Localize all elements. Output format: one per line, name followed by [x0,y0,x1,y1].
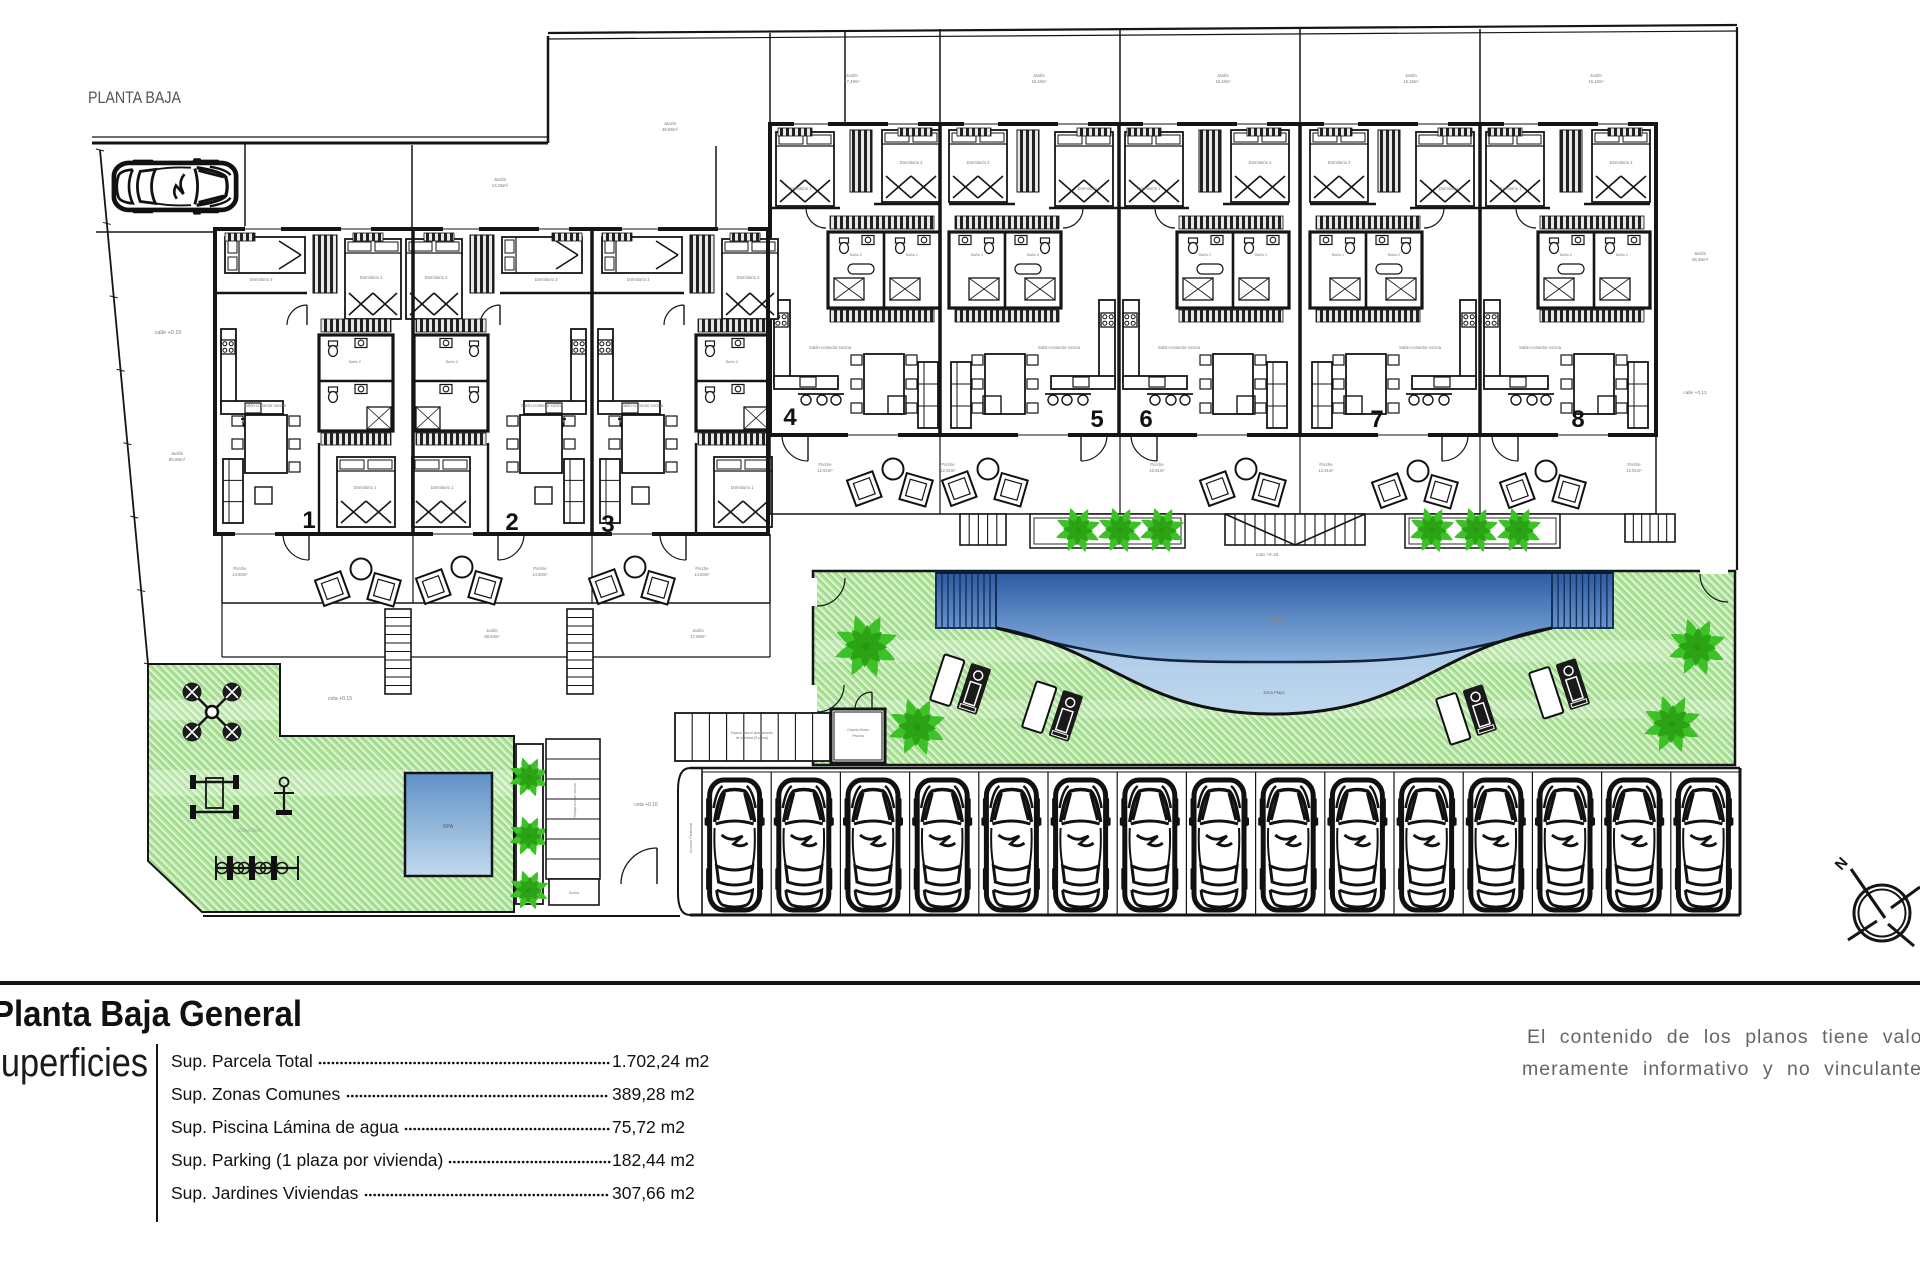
svg-text:Dormitorio 2: Dormitorio 2 [1610,160,1633,165]
svg-text:Dormitorio 2: Dormitorio 2 [900,160,923,165]
svg-text:Porche: Porche [818,462,832,467]
svg-text:12,91m²: 12,91m² [1149,468,1165,473]
svg-text:Porche: Porche [941,462,955,467]
svg-text:Sup. Parcela Total: Sup. Parcela Total [171,1051,313,1071]
svg-text:cota +0.16: cota +0.16 [634,802,658,808]
svg-text:16,16m²: 16,16m² [1215,79,1231,84]
svg-text:Jardín: Jardín [692,628,704,633]
svg-text:Jardín: Jardín [1590,73,1602,78]
svg-text:Baño 2: Baño 2 [349,360,361,364]
svg-text:16,16m²: 16,16m² [1031,79,1047,84]
svg-text:Rampa acceso minusv.: Rampa acceso minusv. [573,782,577,817]
svg-text:Acceso Peatonal: Acceso Peatonal [688,823,693,853]
svg-text:Jardín: Jardín [846,73,858,78]
svg-text:Porche: Porche [233,566,247,571]
svg-text:PLANTA BAJA: PLANTA BAJA [88,88,182,107]
svg-text:cota +0.15: cota +0.15 [328,696,352,702]
svg-text:calle +0.15: calle +0.15 [155,330,182,336]
svg-text:Zona Gym: Zona Gym [238,828,261,834]
svg-text:Jardín: Jardín [1217,73,1229,78]
svg-text:Jardín: Jardín [1405,73,1417,78]
svg-text:Porche: Porche [695,566,709,571]
svg-text:14,60m²: 14,60m² [694,572,710,577]
svg-text:Baño 2: Baño 2 [1199,253,1211,257]
svg-text:Dormitorio 1: Dormitorio 1 [354,485,377,490]
svg-text:7: 7 [1370,406,1383,433]
svg-text:Caseta Motor: Caseta Motor [847,728,869,732]
svg-text:5: 5 [1090,406,1103,433]
svg-text:14,05m²: 14,05m² [492,183,509,188]
svg-text:El contenido de los planos tie: El contenido de los planos tiene valor [1527,1026,1920,1048]
svg-text:90,86m²: 90,86m² [169,457,186,462]
svg-text:2: 2 [505,509,518,536]
svg-text:Jardín: Jardín [664,121,677,126]
svg-text:Salón-comedor-cocina: Salón-comedor-cocina [1038,345,1081,350]
svg-text:Salón-comedor-cocina: Salón-comedor-cocina [809,345,852,350]
svg-text:Sup. Zonas Comunes: Sup. Zonas Comunes [171,1084,341,1104]
svg-text:Baño 1: Baño 1 [1255,253,1267,257]
svg-text:cota +0.16: cota +0.16 [1256,552,1279,558]
svg-text:Dormitorio 3: Dormitorio 3 [535,277,558,282]
svg-text:Baño 2: Baño 2 [1388,253,1400,257]
svg-text:Jardín: Jardín [1694,251,1707,256]
svg-text:17,49m²: 17,49m² [844,79,860,84]
svg-text:Baño 2: Baño 2 [726,360,738,364]
svg-text:Dormitorio 2: Dormitorio 2 [1249,160,1272,165]
svg-text:Baño 1: Baño 1 [1616,253,1628,257]
svg-text:de bicicletas (8 plazas): de bicicletas (8 plazas) [736,736,768,740]
svg-text:Porche: Porche [1150,462,1164,467]
svg-text:88,54m²: 88,54m² [484,634,500,639]
svg-text:182,44 m2: 182,44 m2 [612,1150,695,1170]
svg-text:48,86m²: 48,86m² [662,127,679,132]
svg-text:Dormitorio 2: Dormitorio 2 [1328,160,1351,165]
svg-text:Salón-comedor-cocina: Salón-comedor-cocina [621,403,664,408]
svg-text:75,72 m2: 75,72 m2 [612,1117,685,1137]
svg-text:Jardín: Jardín [1033,73,1045,78]
svg-text:Baño 2: Baño 2 [446,360,458,364]
svg-text:Salón-comedor-cocina: Salón-comedor-cocina [1519,345,1562,350]
svg-text:Dormitorio 3: Dormitorio 3 [627,277,650,282]
svg-text:Sup. Piscina Lámina de agua: Sup. Piscina Lámina de agua [171,1117,399,1137]
svg-text:Dormitorio 1: Dormitorio 1 [431,485,454,490]
svg-text:Dormitorio 1: Dormitorio 1 [1439,186,1462,191]
svg-text:Salón-comedor-cocina: Salón-comedor-cocina [521,403,564,408]
svg-text:6: 6 [1139,406,1152,433]
svg-text:Porche: Porche [533,566,547,571]
svg-text:Ducha: Ducha [569,891,579,895]
svg-text:Planta Baja General: Planta Baja General [0,993,302,1034]
svg-text:Salón-comedor-cocina: Salón-comedor-cocina [1399,345,1442,350]
svg-text:17,68m²: 17,68m² [690,634,706,639]
svg-text:calle +0,13: calle +0,13 [1683,390,1707,396]
svg-text:Salón-comedor-cocina: Salón-comedor-cocina [1158,345,1201,350]
svg-text:Dormitorio 1: Dormitorio 1 [731,485,754,490]
svg-text:Jardín: Jardín [171,451,184,456]
svg-text:Dormitorio 2: Dormitorio 2 [967,160,990,165]
svg-text:3: 3 [601,511,614,538]
svg-text:14,60m²: 14,60m² [232,572,248,577]
svg-text:Baño 2: Baño 2 [850,253,862,257]
svg-text:Baño 1: Baño 1 [1332,253,1344,257]
svg-text:Piscina: Piscina [1270,617,1284,622]
svg-text:Dormitorio 1: Dormitorio 1 [1078,186,1101,191]
svg-text:Dormitorio 2: Dormitorio 2 [360,275,383,280]
svg-text:Dormitorio 1: Dormitorio 1 [1499,186,1522,191]
svg-text:Baño 1: Baño 1 [971,253,983,257]
svg-text:Sup. Parking (1 plaza por vivi: Sup. Parking (1 plaza por vivienda) [171,1150,443,1170]
svg-text:389,28 m2: 389,28 m2 [612,1084,695,1104]
svg-text:49,36m²: 49,36m² [1692,257,1709,262]
svg-text:Sup. Jardines Viviendas: Sup. Jardines Viviendas [171,1183,359,1203]
svg-text:Jardín: Jardín [486,628,498,633]
svg-text:16,16m²: 16,16m² [1403,79,1419,84]
svg-text:Superficies: Superficies [0,1041,148,1085]
svg-text:Baño 2: Baño 2 [1560,253,1572,257]
svg-text:Porche: Porche [1319,462,1333,467]
svg-text:Dormitorio 1: Dormitorio 1 [1138,186,1161,191]
svg-text:8: 8 [1571,406,1584,433]
svg-text:12,91m²: 12,91m² [817,468,833,473]
svg-text:12,91m²: 12,91m² [1626,468,1642,473]
svg-text:Baño 2: Baño 2 [1027,253,1039,257]
svg-text:307,66 m2: 307,66 m2 [612,1183,695,1203]
svg-text:Dormitorio 1: Dormitorio 1 [789,186,812,191]
svg-text:1.702,24 m2: 1.702,24 m2 [612,1051,709,1071]
svg-text:SPA: SPA [443,824,454,830]
svg-text:12,91m²: 12,91m² [1318,468,1334,473]
svg-text:4: 4 [783,404,797,431]
svg-text:12,91m²: 12,91m² [940,468,956,473]
svg-text:16,16m²: 16,16m² [1588,79,1604,84]
svg-text:Porche: Porche [1627,462,1641,467]
svg-text:Espacio para el aparcamiento: Espacio para el aparcamiento [731,731,773,735]
svg-text:Dormitorio 2: Dormitorio 2 [737,275,760,280]
svg-text:Zona Playa: Zona Playa [1263,690,1285,695]
svg-text:Piscina: Piscina [852,734,864,738]
svg-text:Salón-comedor-cocina: Salón-comedor-cocina [244,403,287,408]
svg-text:Dormitorio 2: Dormitorio 2 [425,275,448,280]
svg-text:Dormitorio 3: Dormitorio 3 [250,277,273,282]
svg-text:Baño 1: Baño 1 [906,253,918,257]
svg-text:14,60m²: 14,60m² [532,572,548,577]
svg-text:meramente informativo y no vin: meramente informativo y no vinculante [1522,1058,1920,1080]
svg-text:1: 1 [302,507,315,534]
svg-text:Jardín: Jardín [494,177,507,182]
